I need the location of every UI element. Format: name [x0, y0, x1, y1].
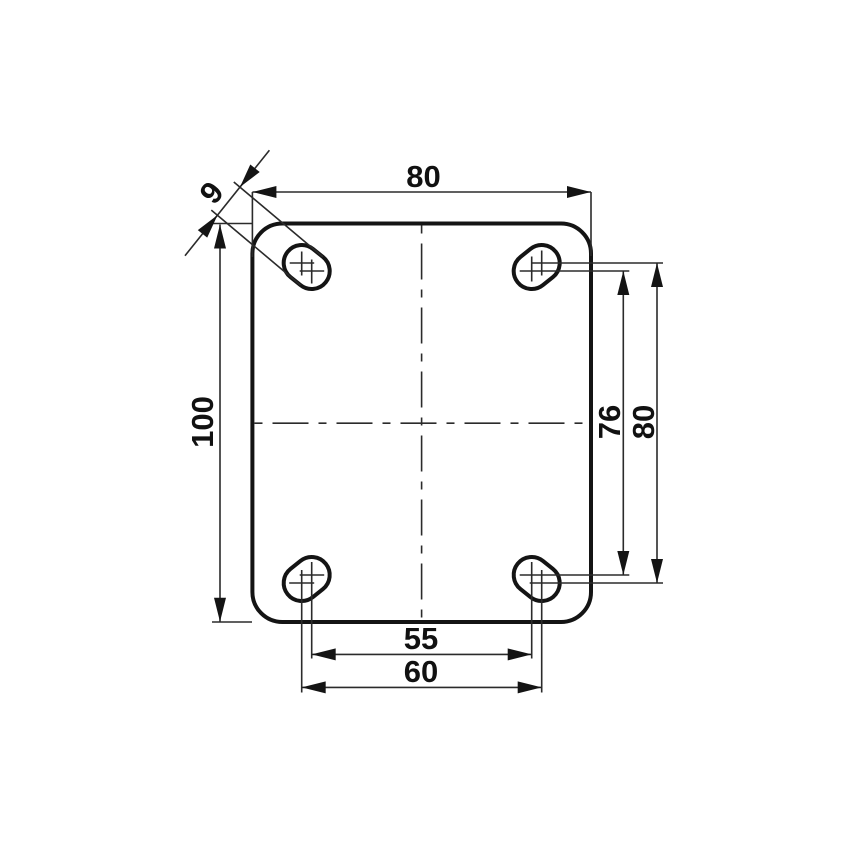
svg-text:80: 80: [406, 159, 440, 194]
svg-text:80: 80: [626, 405, 661, 439]
svg-text:55: 55: [404, 621, 438, 656]
svg-text:76: 76: [592, 405, 627, 439]
svg-text:60: 60: [404, 654, 438, 689]
svg-text:100: 100: [185, 396, 220, 448]
